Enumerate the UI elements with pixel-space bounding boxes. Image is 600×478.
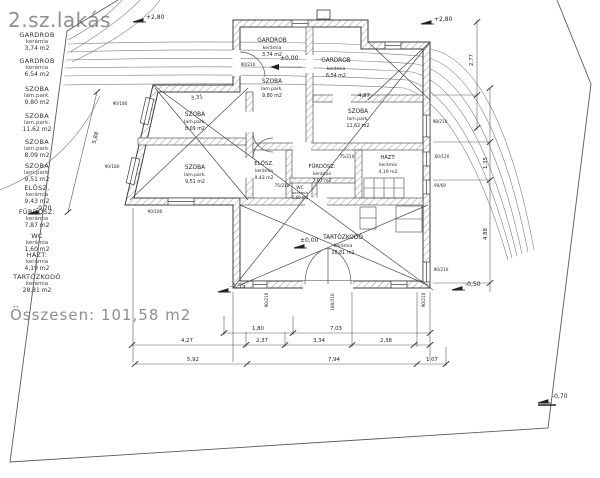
level-label: ±0,00 (300, 237, 319, 244)
room-label-material: kerámia (263, 44, 282, 51)
window-dim-label: 90/180 (113, 101, 128, 106)
room-label-material: kerámia (327, 65, 346, 72)
dim-label: 4,27 (181, 338, 193, 344)
dim-label: 7,94 (328, 357, 341, 363)
room-label-material: lam.park. (184, 172, 206, 178)
stairs-symbol (364, 178, 404, 198)
dim-label: 5,88 (92, 131, 101, 145)
door-dim-label: 75/210 (275, 183, 290, 188)
dim-label: 1,07 (426, 357, 438, 363)
chimney (317, 10, 330, 19)
dim-label: 3,31 (190, 94, 203, 102)
window-dim-label: 98/210 (433, 119, 448, 124)
dim-label: 5,92 (187, 357, 199, 363)
dim-label: 2,77 (469, 54, 475, 66)
room-label: HÁZT: (380, 154, 396, 161)
dim-label: 4,88 (483, 227, 489, 240)
dim-label: 2,37 (256, 338, 268, 344)
level-label: -0,70 (36, 205, 52, 212)
floor-plan-sheet: 2.sz.lakás GARDROBkerámia3,74 m2 GARDROB… (0, 0, 600, 478)
room-label: ELŐSZ. (254, 160, 274, 167)
door-dim-label: 75/210 (340, 154, 355, 159)
room-label-material: lam.park. (184, 119, 206, 125)
room-label-area: 4,19 m2 (378, 169, 397, 175)
room-label-material: kerámia (255, 167, 273, 174)
room-label-area: 1,60 m2 (292, 195, 309, 200)
window-dim-label: 180/210 (330, 293, 335, 311)
level-label: ±0,00 (280, 55, 299, 62)
door-dim-label: 90/210 (241, 62, 256, 67)
room-label: FÜRDŐSZ: (308, 163, 335, 170)
window-dim-label: 90/60 (434, 183, 446, 188)
dim-label: 3,34 (313, 338, 326, 344)
elevation-markers: +2,80 +2,80 ±0,00 ±0,00 -0,70 -0,55 -0,5… (28, 14, 568, 405)
room-label-area: 8,09 m2 (185, 126, 205, 132)
window-dim-label: 90/180 (148, 209, 163, 214)
room-label: GARDROB (257, 38, 287, 44)
dim-label: 1,35 (483, 157, 489, 169)
room-label-material: lam.park. (347, 116, 369, 122)
room-label-area: 9,80 m2 (262, 93, 282, 99)
room-label: SZOBA (185, 112, 205, 118)
window-dim-label: 90/210 (421, 292, 426, 307)
room-label-area: 6,54 m2 (326, 73, 346, 79)
entry-arrow (270, 64, 279, 70)
level-label: -0,70 (552, 393, 568, 400)
window-dim-label: 90/210 (434, 267, 449, 272)
room-label: SZOBA (185, 165, 205, 171)
room-label-area: 7,87 m2 (312, 178, 331, 184)
room-label-area: 9,51 m2 (185, 179, 205, 185)
windows (126, 20, 430, 288)
site-plan-drawing: GARDROB kerámia 3,74 m2 GARDROB kerámia … (0, 0, 600, 478)
dim-label: 4,87 (358, 93, 370, 99)
room-label-material: kerámia (313, 170, 331, 177)
dim-label: 7,03 (330, 326, 342, 332)
level-label: -0,50 (465, 281, 481, 288)
room-label-area: 9,43 m2 (254, 175, 273, 181)
room-label: SZOBA (348, 109, 368, 115)
window-dim-label: 60/120 (435, 154, 450, 159)
level-label: +2,80 (434, 16, 453, 23)
window-dim-label: 90/180 (105, 164, 120, 169)
dim-label: 2,38 (380, 338, 393, 344)
room-label-area: 3,74 m2 (262, 52, 282, 58)
level-label: +2,80 (146, 14, 165, 21)
room-label-material: kerámia (379, 161, 397, 168)
level-label: -0,55 (230, 283, 246, 290)
room-label: TARTÓZKODÓ (322, 234, 363, 241)
room-label-material: kerámia (334, 242, 353, 249)
room-label-material: lam.park. (261, 86, 283, 92)
room-label: GARDROB (321, 58, 351, 64)
room-label-area: 11,62 m2 (347, 123, 370, 129)
room-label: SZOBA (262, 79, 282, 85)
dim-label: 1,80 (252, 326, 265, 332)
window-dim-label: 90/210 (264, 292, 269, 307)
room-label-area: 28,81 m2 (332, 250, 355, 256)
